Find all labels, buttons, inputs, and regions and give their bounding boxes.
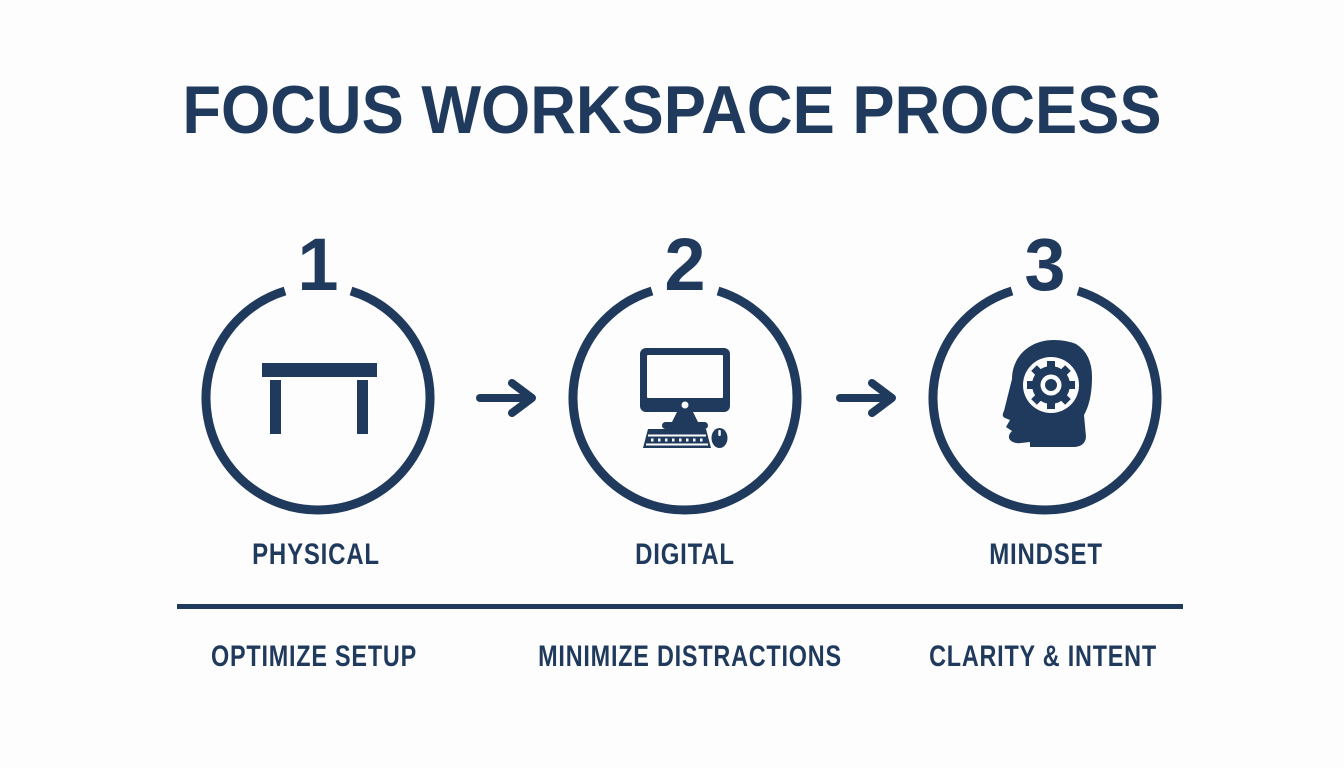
step-2-label: DIGITAL: [525, 538, 845, 572]
diagram-title: FOCUS WORKSPACE PROCESS: [47, 76, 1297, 144]
diagram-canvas: FOCUS WORKSPACE PROCESS 1 2: [0, 0, 1344, 768]
arrow-right-icon: [474, 372, 544, 424]
step-3-number: 3: [1024, 223, 1065, 306]
step-1-number: 1: [297, 223, 338, 306]
step-1-label: PHYSICAL: [156, 538, 476, 572]
step-2-number: 2: [664, 223, 705, 306]
step-1-ring: [206, 291, 430, 510]
arrow-right-icon: [834, 372, 904, 424]
step-1-caption: OPTIMIZE SETUP: [135, 640, 494, 674]
head-gear-icon: [1003, 340, 1092, 447]
step-3-circle: 3: [915, 208, 1175, 528]
computer-icon: [640, 348, 730, 448]
step-3-label: MINDSET: [886, 538, 1206, 572]
step-2-caption: MINIMIZE DISTRACTIONS: [511, 640, 870, 674]
gear-icon: [1027, 361, 1075, 409]
step-2-circle: 2: [555, 208, 815, 528]
divider-line: [177, 604, 1183, 609]
desk-icon: [262, 363, 377, 434]
step-3-caption: CLARITY & INTENT: [864, 640, 1223, 674]
step-1-circle: 1: [188, 208, 448, 528]
